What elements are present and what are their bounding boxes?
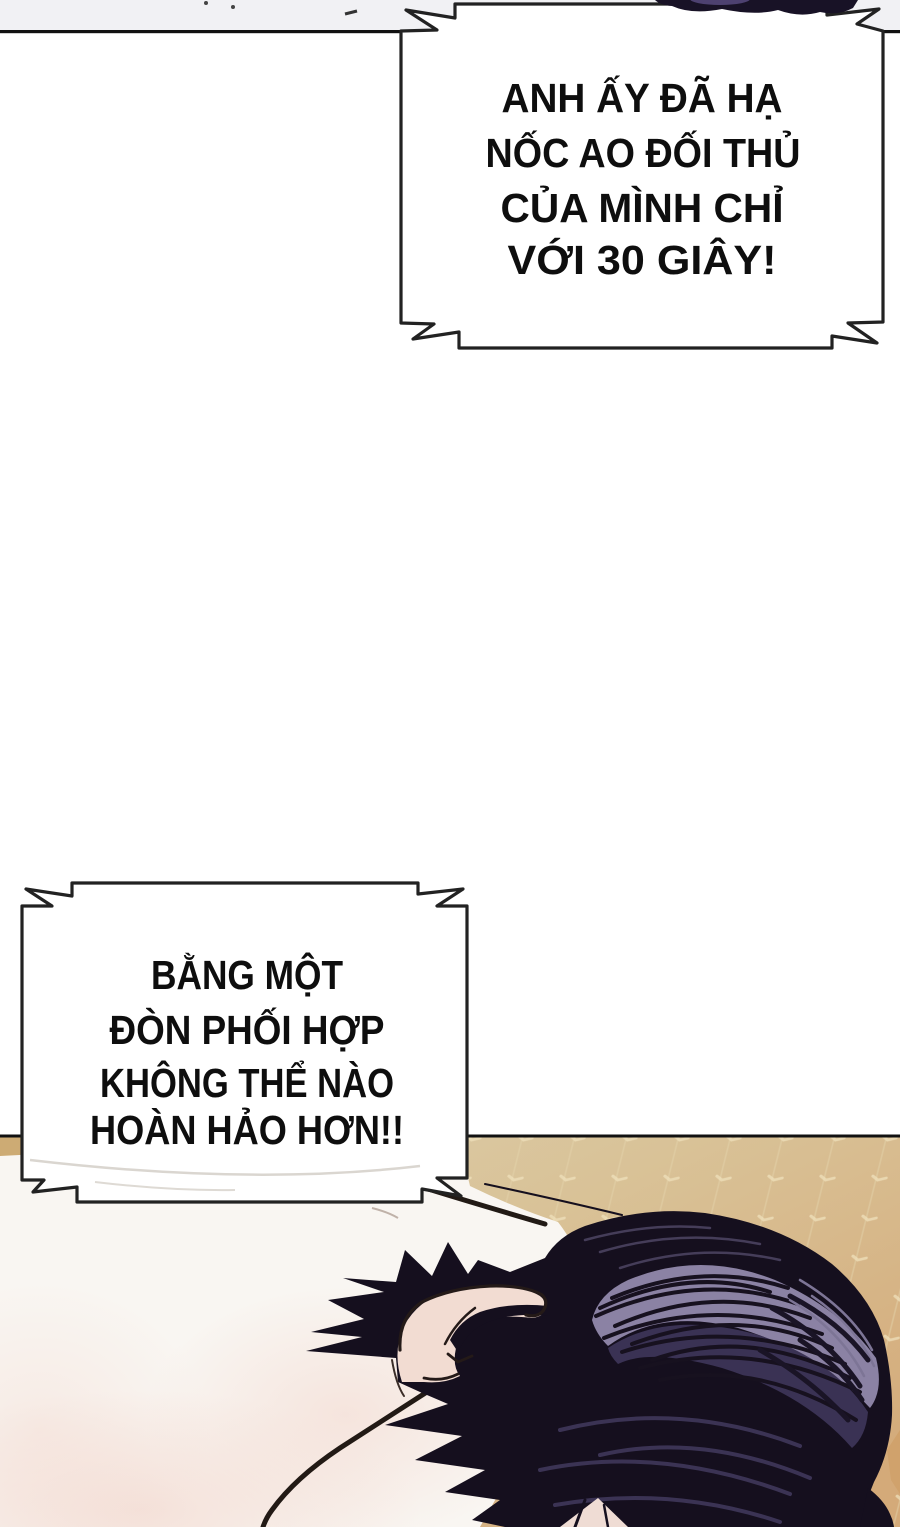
svg-text:ĐÒN PHỐI HỢP: ĐÒN PHỐI HỢP xyxy=(110,1007,385,1053)
svg-text:KHÔNG THỂ NÀO: KHÔNG THỂ NÀO xyxy=(100,1059,394,1106)
svg-text:BẰNG MỘT: BẰNG MỘT xyxy=(151,952,343,998)
svg-text:VỚI 30 GIÂY!: VỚI 30 GIÂY! xyxy=(508,237,777,283)
svg-text:CỦA MÌNH CHỈ: CỦA MÌNH CHỈ xyxy=(501,185,784,231)
svg-text:HOÀN HẢO HƠN!!: HOÀN HẢO HƠN!! xyxy=(90,1107,404,1153)
svg-text:NỐC AO ĐỐI THỦ: NỐC AO ĐỐI THỦ xyxy=(486,130,801,176)
svg-text:ANH ẤY ĐÃ HẠ: ANH ẤY ĐÃ HẠ xyxy=(502,75,783,121)
